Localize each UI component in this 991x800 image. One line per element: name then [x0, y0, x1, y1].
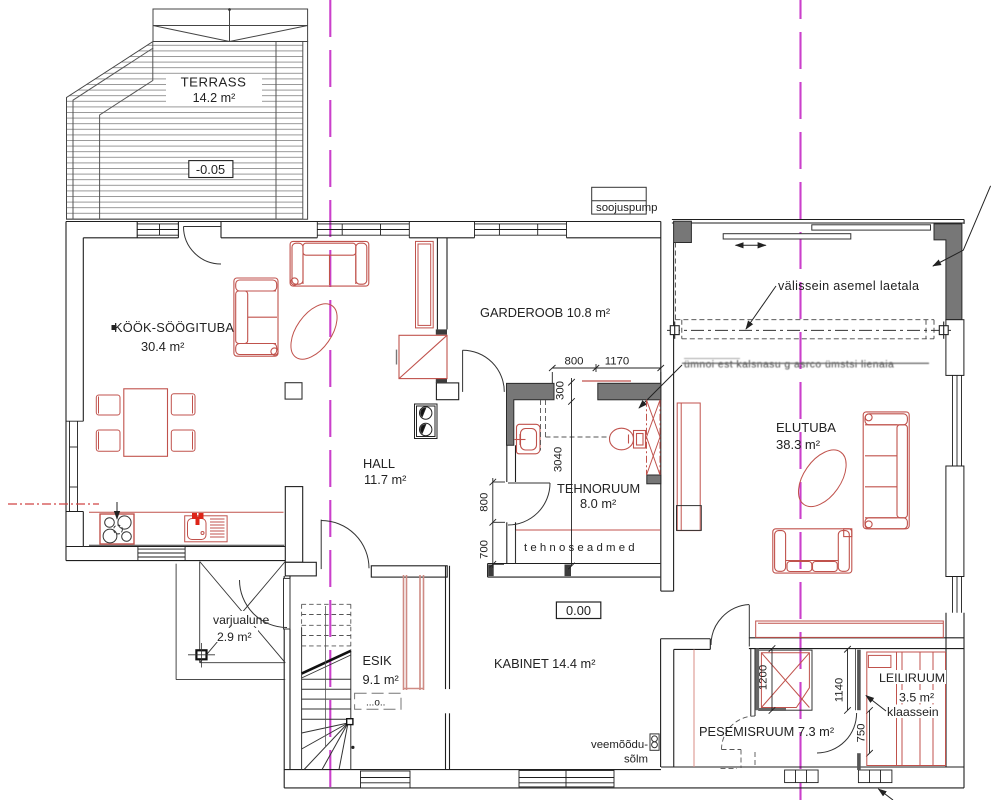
- svg-text:3040: 3040: [553, 447, 565, 472]
- svg-text:TEHNORUUM: TEHNORUUM: [557, 481, 640, 496]
- svg-text:välissein asemel laetala: välissein asemel laetala: [778, 279, 919, 293]
- svg-text:PESEMISRUUM 7.3 m²: PESEMISRUUM 7.3 m²: [699, 724, 835, 739]
- svg-text:0.00: 0.00: [566, 603, 591, 618]
- svg-text:3.5 m²: 3.5 m²: [899, 691, 934, 705]
- svg-text:11.7 m²: 11.7 m²: [364, 472, 407, 487]
- svg-text:1200: 1200: [758, 665, 770, 690]
- svg-text:800: 800: [479, 493, 491, 512]
- svg-text:tehnoseadmed: tehnoseadmed: [524, 542, 638, 554]
- svg-text:1140: 1140: [834, 678, 846, 703]
- svg-text:800: 800: [564, 356, 583, 368]
- svg-text:38.3 m²: 38.3 m²: [776, 437, 821, 452]
- svg-text:30.4 m²: 30.4 m²: [141, 339, 185, 354]
- svg-text:klaassein: klaassein: [887, 705, 939, 719]
- svg-text:14.2 m²: 14.2 m²: [193, 91, 236, 105]
- svg-text:2.9 m²: 2.9 m²: [217, 630, 252, 644]
- svg-text:veemõõdu-: veemõõdu-: [591, 739, 648, 751]
- svg-text:soojuspump: soojuspump: [596, 202, 657, 214]
- svg-text:KÖÖK-SÖÖGITUBA: KÖÖK-SÖÖGITUBA: [114, 320, 234, 335]
- svg-text:TERRASS: TERRASS: [181, 75, 247, 90]
- svg-text:ümnoi est kalsnasu g asrco: ümnoi est kalsnasu g asrco ümstsi lienai…: [684, 360, 894, 371]
- svg-text:ELUTUBA: ELUTUBA: [776, 420, 836, 435]
- svg-text:1170: 1170: [605, 356, 630, 368]
- svg-text:LEILIRUUM: LEILIRUUM: [879, 671, 945, 685]
- svg-text:700: 700: [479, 540, 491, 559]
- svg-text:-0.05: -0.05: [196, 162, 225, 177]
- svg-text:KABINET 14.4 m²: KABINET 14.4 m²: [494, 656, 596, 671]
- svg-text:ESIK: ESIK: [363, 653, 393, 668]
- svg-text:8.0 m²: 8.0 m²: [580, 496, 617, 511]
- svg-text:...o..: ...o..: [366, 698, 385, 709]
- svg-text:300: 300: [555, 381, 567, 400]
- svg-text:9.1 m²: 9.1 m²: [363, 672, 400, 687]
- svg-text:sõlm: sõlm: [624, 754, 648, 766]
- svg-text:HALL: HALL: [363, 456, 395, 471]
- svg-text:GARDEROOB 10.8 m²: GARDEROOB 10.8 m²: [480, 305, 611, 320]
- svg-text:750: 750: [856, 723, 868, 742]
